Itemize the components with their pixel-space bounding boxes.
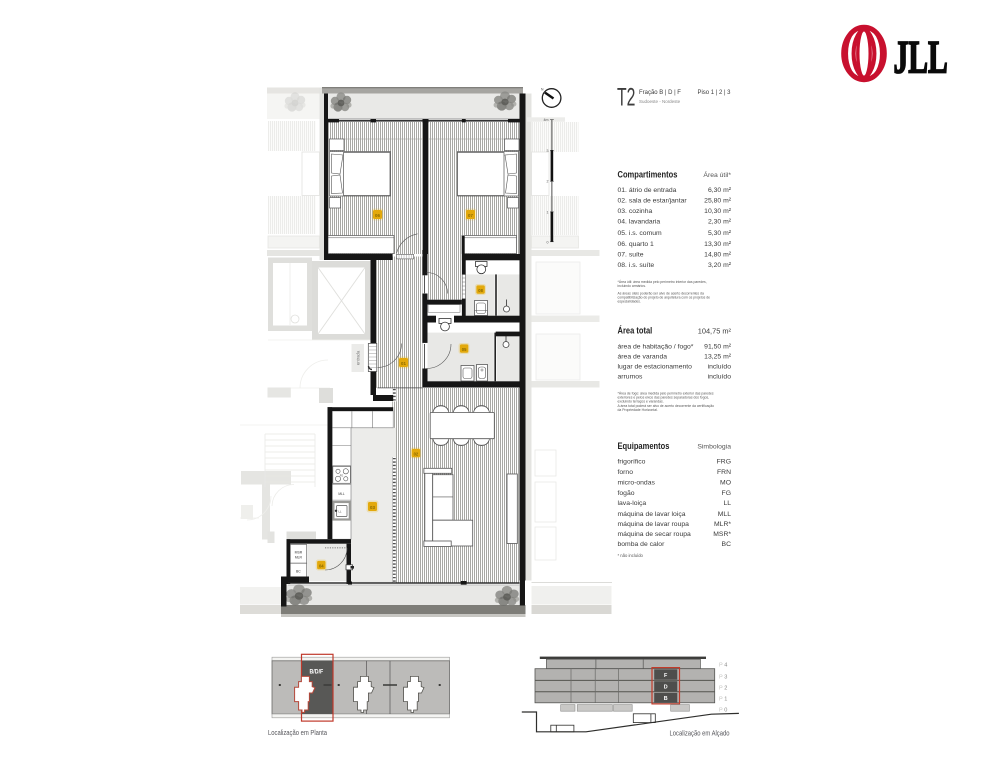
svg-text:entrada: entrada xyxy=(356,350,361,365)
svg-text:B/D/F: B/D/F xyxy=(310,669,324,675)
svg-text:02: 02 xyxy=(414,451,419,456)
svg-text:6,30 m²: 6,30 m² xyxy=(708,187,732,194)
svg-text:P 4: P 4 xyxy=(719,662,727,668)
svg-text:T2: T2 xyxy=(617,84,635,112)
svg-text:BC: BC xyxy=(722,541,732,548)
svg-text:3: 3 xyxy=(547,149,549,153)
svg-text:Simbologia: Simbologia xyxy=(697,444,731,451)
svg-text:1: 1 xyxy=(547,210,549,214)
svg-text:4m: 4m xyxy=(544,118,549,122)
svg-text:incluindo armários.: incluindo armários. xyxy=(618,284,647,288)
svg-text:P 2: P 2 xyxy=(719,685,727,691)
svg-text:03. cozinha: 03. cozinha xyxy=(618,208,653,215)
svg-text:5,30 m²: 5,30 m² xyxy=(708,230,732,237)
svg-text:Fração B | D | F: Fração B | D | F xyxy=(639,88,681,95)
svg-text:MSR: MSR xyxy=(295,550,303,554)
svg-text:BC: BC xyxy=(296,570,301,574)
svg-text:bomba de calor: bomba de calor xyxy=(618,541,666,548)
svg-text:08: 08 xyxy=(478,288,483,293)
svg-text:frigorífico: frigorífico xyxy=(618,459,646,466)
svg-text:Área útil*: Área útil* xyxy=(703,170,731,179)
svg-text:02. sala de estar/jantar: 02. sala de estar/jantar xyxy=(618,198,688,205)
svg-text:25,80 m²: 25,80 m² xyxy=(704,198,732,205)
svg-text:0: 0 xyxy=(547,240,549,244)
svg-text:14,80 m²: 14,80 m² xyxy=(704,252,732,259)
svg-text:máquina de lavar roupa: máquina de lavar roupa xyxy=(618,521,690,528)
svg-text:P 3: P 3 xyxy=(719,674,727,680)
svg-text:micro-ondas: micro-ondas xyxy=(618,480,656,487)
svg-text:05: 05 xyxy=(462,347,467,352)
svg-text:B: B xyxy=(664,696,668,702)
svg-text:06: 06 xyxy=(375,213,380,218)
svg-text:07. suíte: 07. suíte xyxy=(618,252,644,259)
svg-text:13,25 m²: 13,25 m² xyxy=(704,354,732,361)
svg-text:Localização em Alçado: Localização em Alçado xyxy=(670,730,730,738)
svg-text:MLR*: MLR* xyxy=(714,521,731,528)
svg-text:arrumos: arrumos xyxy=(618,374,644,381)
svg-text:Área total: Área total xyxy=(618,324,653,336)
svg-text:04: 04 xyxy=(319,563,324,568)
svg-text:incluído: incluído xyxy=(708,364,732,371)
svg-text:Sudoeste - Nordeste: Sudoeste - Nordeste xyxy=(639,99,681,104)
svg-text:excluindo terraços e varandas.: excluindo terraços e varandas. xyxy=(618,400,664,404)
svg-text:forno: forno xyxy=(618,469,634,476)
svg-text:Compartimentos: Compartimentos xyxy=(618,169,678,180)
svg-text:07: 07 xyxy=(468,213,473,218)
svg-text:área de habitação / fogo*: área de habitação / fogo* xyxy=(618,344,694,351)
svg-text:03: 03 xyxy=(370,505,375,510)
svg-text:fogão: fogão xyxy=(618,490,635,497)
svg-text:2: 2 xyxy=(547,180,549,184)
svg-text:P 1: P 1 xyxy=(719,696,727,702)
svg-text:2,30 m²: 2,30 m² xyxy=(708,219,732,226)
svg-text:FG: FG xyxy=(340,473,344,477)
svg-text:3,20 m²: 3,20 m² xyxy=(708,262,732,269)
svg-text:lava-loiça: lava-loiça xyxy=(618,500,647,507)
svg-text:Piso 1 | 2 | 3: Piso 1 | 2 | 3 xyxy=(698,88,731,95)
svg-text:LL: LL xyxy=(723,500,731,507)
svg-text:FRN: FRN xyxy=(717,469,731,476)
svg-text:da Propriedade Horizontal.: da Propriedade Horizontal. xyxy=(618,408,658,412)
svg-text:MLL: MLL xyxy=(718,511,731,518)
svg-text:06. quarto 1: 06. quarto 1 xyxy=(618,241,654,248)
svg-text:P 0: P 0 xyxy=(719,707,727,713)
svg-text:04. lavandaria: 04. lavandaria xyxy=(618,219,661,226)
svg-text:MSR*: MSR* xyxy=(713,531,731,538)
svg-text:incluído: incluído xyxy=(708,374,732,381)
svg-text:* não incluído: * não incluído xyxy=(618,553,644,558)
svg-text:Localização em Planta: Localização em Planta xyxy=(268,730,327,738)
svg-text:máquina de lavar loiça: máquina de lavar loiça xyxy=(618,511,686,518)
svg-text:MLR: MLR xyxy=(295,555,303,559)
svg-text:05. i.s. comum: 05. i.s. comum xyxy=(618,230,663,237)
svg-text:MO: MO xyxy=(720,480,731,487)
svg-text:MLL: MLL xyxy=(338,492,344,496)
svg-text:91,50 m²: 91,50 m² xyxy=(704,344,732,351)
svg-text:08. i.s. suíte: 08. i.s. suíte xyxy=(618,262,655,269)
svg-text:10,30 m²: 10,30 m² xyxy=(704,208,732,215)
svg-text:01. átrio de entrada: 01. átrio de entrada xyxy=(618,187,677,194)
svg-text:área de varanda: área de varanda xyxy=(618,354,668,361)
svg-text:D: D xyxy=(664,685,668,691)
svg-text:104,75 m²: 104,75 m² xyxy=(698,327,732,336)
svg-text:13,30 m²: 13,30 m² xyxy=(704,241,732,248)
svg-text:lugar de estacionamento: lugar de estacionamento xyxy=(618,364,693,371)
svg-text:Equipamentos: Equipamentos xyxy=(618,440,670,451)
svg-text:especialidades.: especialidades. xyxy=(618,300,641,304)
svg-text:FRG: FRG xyxy=(717,459,731,466)
svg-text:JLL: JLL xyxy=(894,32,948,83)
svg-text:FG: FG xyxy=(722,490,731,497)
svg-text:01: 01 xyxy=(401,361,406,366)
svg-text:máquina de secar roupa: máquina de secar roupa xyxy=(618,531,692,538)
